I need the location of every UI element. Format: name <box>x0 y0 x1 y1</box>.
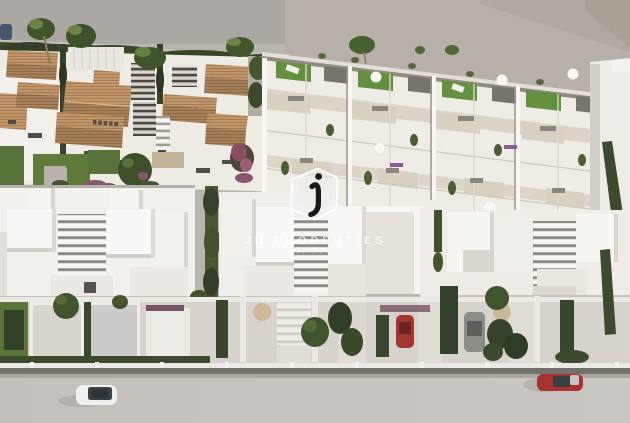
svg-text:REAL ESTATE: REAL ESTATE <box>283 250 349 256</box>
svg-text:JU PROPERTIES: JU PROPERTIES <box>245 235 387 247</box>
